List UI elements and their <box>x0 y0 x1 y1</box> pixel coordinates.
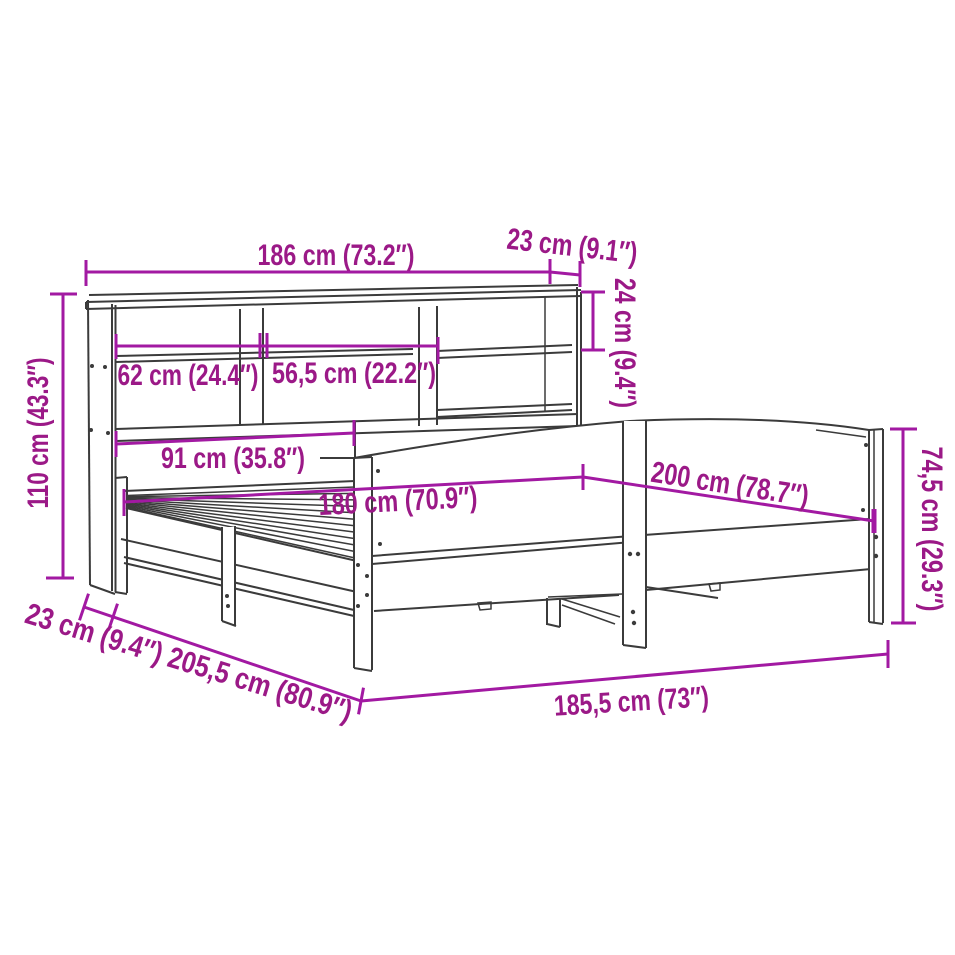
svg-text:110 cm (43.3″): 110 cm (43.3″) <box>22 358 55 509</box>
svg-text:62 cm (24.4″): 62 cm (24.4″) <box>118 359 259 392</box>
svg-text:74,5 cm (29.3″): 74,5 cm (29.3″) <box>915 447 948 612</box>
svg-text:186 cm (73.2″): 186 cm (73.2″) <box>258 239 415 272</box>
svg-text:91 cm (35.8″): 91 cm (35.8″) <box>161 442 305 475</box>
svg-text:24 cm (9.4″): 24 cm (9.4″) <box>608 278 641 408</box>
svg-text:56,5 cm (22.2″): 56,5 cm (22.2″) <box>272 357 436 390</box>
